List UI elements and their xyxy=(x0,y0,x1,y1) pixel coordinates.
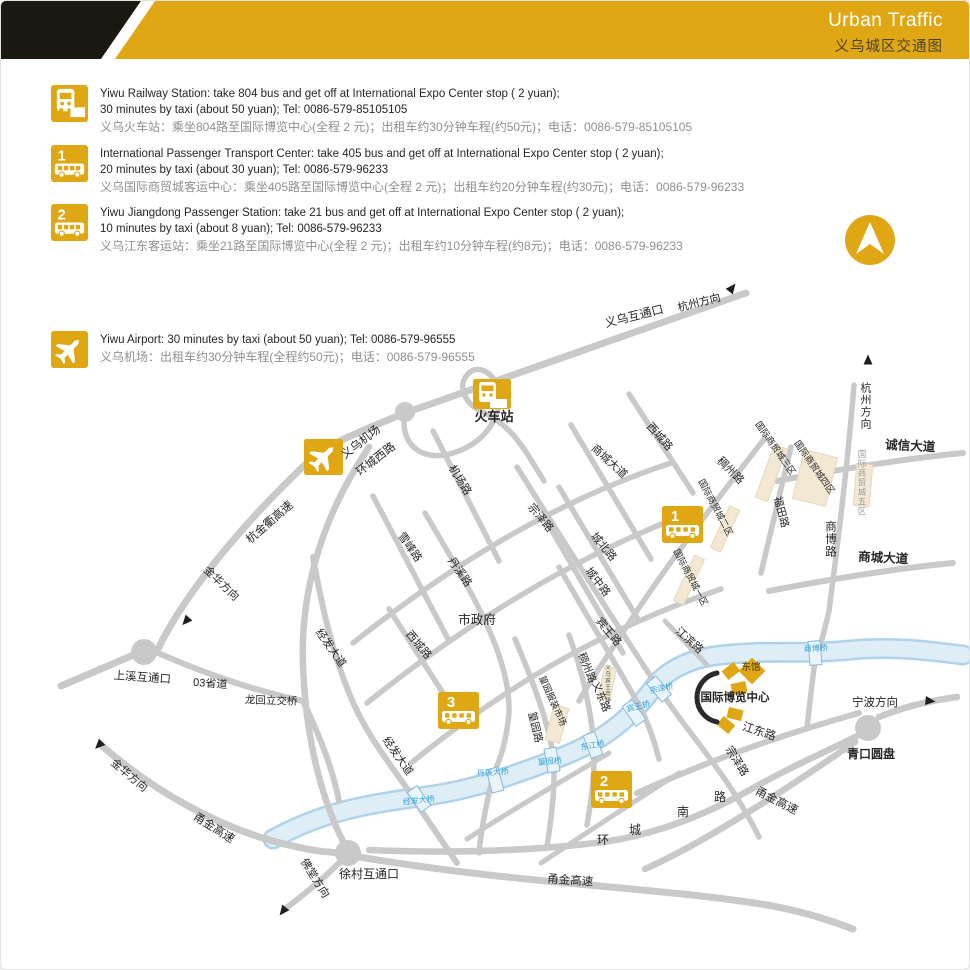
svg-text:3: 3 xyxy=(447,694,455,711)
legend-block-jiangdong-station: 2 Yiwu Jiangdong Passenger Station: take… xyxy=(51,204,731,255)
junction-xucun xyxy=(335,840,361,866)
map-label: 商城大道 xyxy=(858,549,909,567)
map-label: 西城路 xyxy=(644,420,676,453)
page-title-zh: 义乌城区交通图 xyxy=(828,35,943,56)
legend-line-zh: 义乌火车站：乘坐804路至国际博览中心(全程 2 元)；出租车约30分钟车程(约… xyxy=(100,118,692,136)
map-label: 龙回立交桥 xyxy=(245,693,298,708)
legend-line-zh: 义乌机场：出租车约30分钟车程(全程约50元)；电话：0086-579-9655… xyxy=(100,348,475,366)
map-label: 机场路 xyxy=(446,462,475,497)
svg-text:2: 2 xyxy=(58,208,66,224)
legend-line: International Passenger Transport Center… xyxy=(100,146,744,162)
map-label: 宁波方向 xyxy=(852,695,898,709)
road-shangcheng-west xyxy=(571,425,651,559)
plane-marker-icon xyxy=(304,438,343,476)
map-label: 国际商贸城五区 xyxy=(857,450,867,517)
legend-block-passenger-center: 1 International Passenger Transport Cent… xyxy=(51,145,731,196)
bus-icon-1: 1 xyxy=(51,145,88,182)
svg-text:1: 1 xyxy=(58,149,66,165)
map-label: 甬金高速 xyxy=(753,784,801,818)
junction-station xyxy=(395,402,415,422)
legend-line-zh: 义乌国际商贸城客运中心：乘坐405路至国际博览中心(全程 2 元)；出租车约20… xyxy=(100,178,744,196)
legend-line-zh: 义乌江东客运站：乘坐21路至国际博览中心(全程 2 元)；出租车约10分钟车程(… xyxy=(100,237,683,255)
map-label: 徐村互通口 xyxy=(339,866,399,881)
map-label: 义乌宾王市场 xyxy=(604,664,611,704)
map-label: 商博桥 xyxy=(804,642,828,653)
legend-block-airport: Yiwu Airport: 30 minutes by taxi (about … xyxy=(51,331,731,368)
train-marker-icon xyxy=(473,379,511,409)
map-label: 篁园桥 xyxy=(537,755,562,767)
map-label: 青口圆盘 xyxy=(847,746,895,761)
direction-arrow-icon xyxy=(864,355,873,365)
map-label: 南 xyxy=(677,804,689,819)
bus-marker-1: 1 xyxy=(662,506,703,543)
map-label: 金华方向 xyxy=(201,563,242,604)
map-label: 诚信大道 xyxy=(885,437,936,455)
compass-icon xyxy=(845,215,895,265)
legend-line: Yiwu Railway Station: take 804 bus and g… xyxy=(100,86,692,102)
map-label: 市政府 xyxy=(458,612,496,627)
legend-block-railway: Yiwu Railway Station: take 804 bus and g… xyxy=(51,85,731,136)
header: Urban Traffic 义乌城区交通图 xyxy=(1,1,969,59)
junction-qingkou-roundabout xyxy=(855,715,881,741)
bus-marker-3: 3 xyxy=(438,692,479,729)
junction-shangxi xyxy=(131,639,157,665)
map-label: 环 xyxy=(597,833,609,847)
legend-line: 10 minutes by taxi (about 8 yuan); Tel: … xyxy=(100,221,683,237)
map-label: 国际博览中心 xyxy=(701,690,770,704)
map-label: 火车站 xyxy=(474,409,513,424)
train-icon xyxy=(51,85,88,122)
map-label: 东馆 xyxy=(741,661,760,673)
direction-arrow-icon xyxy=(179,615,192,628)
legend-line: 30 minutes by taxi (about 50 yuan); Tel:… xyxy=(100,102,692,118)
svg-text:2: 2 xyxy=(600,773,608,790)
map-label: 江东路 xyxy=(741,719,779,743)
legend: Yiwu Railway Station: take 804 bus and g… xyxy=(51,85,731,368)
road-shangcheng-east xyxy=(769,563,953,591)
legend-line: Yiwu Jiangdong Passenger Station: take 2… xyxy=(100,205,683,221)
map-label: 杭州方向 xyxy=(859,381,872,430)
svg-text:1: 1 xyxy=(671,508,679,525)
map-label: 上溪互通口 xyxy=(113,669,171,686)
map-label: 甬金高速 xyxy=(547,871,594,888)
plane-icon xyxy=(51,331,88,368)
road-yongjin-expressway-south xyxy=(359,857,853,929)
page: 132义乌互通口杭州方向火车站义乌机场环城西路杭金衢高速金华方向上溪互通口03省… xyxy=(0,0,970,970)
page-title-en: Urban Traffic xyxy=(828,10,943,32)
map-label: 路 xyxy=(714,789,726,804)
legend-line: 20 minutes by taxi (about 30 yuan); Tel:… xyxy=(100,162,744,178)
bus-icon-2: 2 xyxy=(51,204,88,241)
map-label: 城 xyxy=(629,823,641,837)
bus-marker-2: 2 xyxy=(591,771,632,808)
road-network xyxy=(61,293,963,929)
legend-line: Yiwu Airport: 30 minutes by taxi (about … xyxy=(100,332,475,348)
map-label: 商博路 xyxy=(824,519,837,557)
